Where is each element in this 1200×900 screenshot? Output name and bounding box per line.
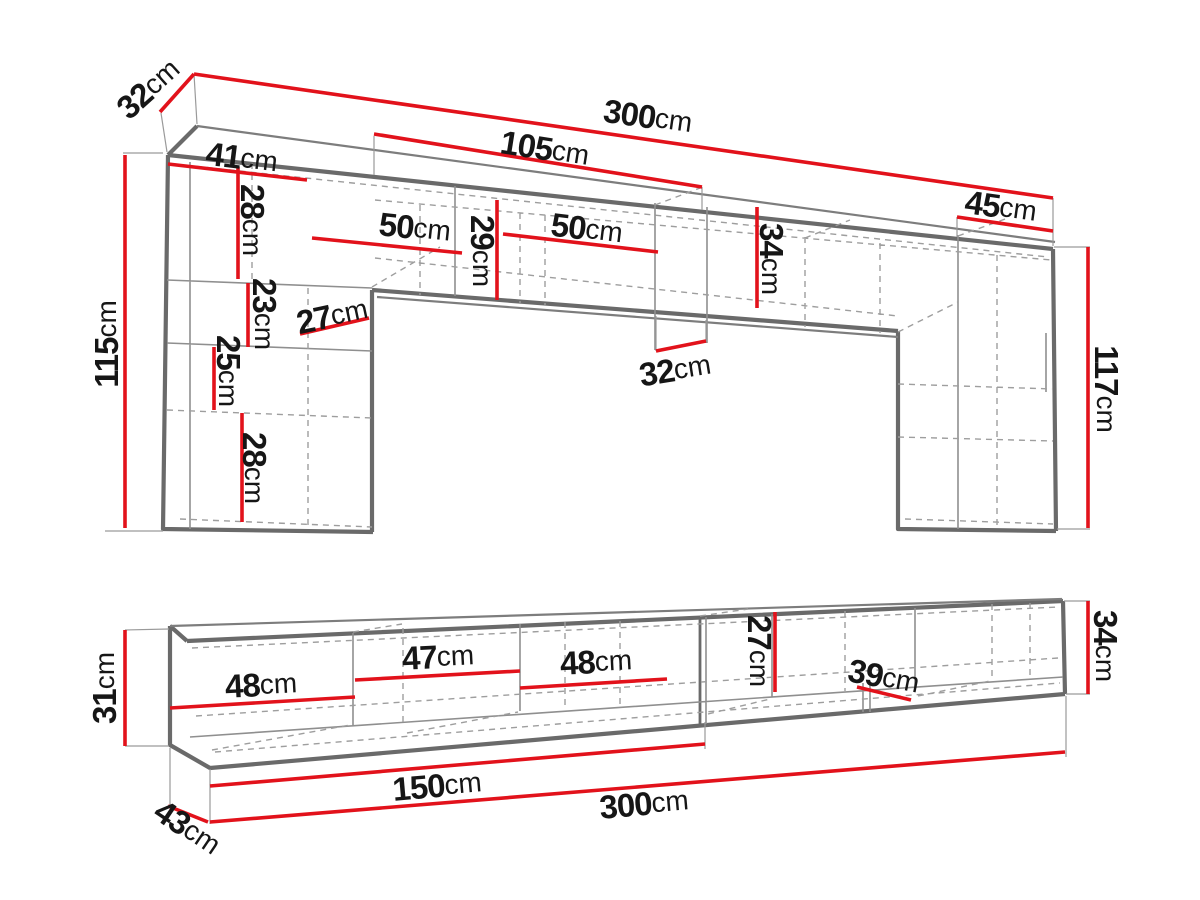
dim-label-left-section2-height: 23cm bbox=[247, 278, 284, 350]
dimension-line-total-width-300cm bbox=[194, 74, 1053, 198]
dim-label-bridge-front-height: 34cm bbox=[754, 223, 791, 295]
dim-label-top-depth: 32cm bbox=[109, 50, 187, 126]
tv-stand-outline bbox=[170, 601, 1065, 768]
tv-stand-drawing: 31cm 48cm 47cm 48cm 27cm 39cm 34cm 150cm… bbox=[86, 599, 1125, 862]
dim-label-stand-right-height: 34cm bbox=[1088, 610, 1125, 682]
diagram-svg: 32cm 300cm 105cm 45cm 41cm 28cm 50cm 29c… bbox=[0, 0, 1200, 900]
dim-label-bridge-depth: 32cm bbox=[637, 345, 714, 393]
dim-label-stand-inner-height: 27cm bbox=[742, 615, 779, 687]
dim-label-left-section4-height: 28cm bbox=[237, 432, 274, 504]
dimension-line-cubby3-48cm bbox=[520, 679, 667, 688]
tv-stand-dimension-labels: 31cm 48cm 47cm 48cm 27cm 39cm 34cm 150cm… bbox=[86, 610, 1125, 863]
dim-label-cubby3-width: 48cm bbox=[559, 641, 633, 682]
dim-label-stand-left-height: 31cm bbox=[86, 652, 123, 724]
dim-label-stand-total-width: 300cm bbox=[598, 781, 690, 826]
dim-label-bridge-inner-height: 29cm bbox=[465, 215, 502, 287]
dim-label-cubby1-width: 48cm bbox=[224, 664, 298, 705]
wall-unit-outline bbox=[163, 126, 1056, 532]
dim-label-left-niche-width: 27cm bbox=[293, 289, 371, 340]
dim-label-left-section3-height: 25cm bbox=[211, 335, 248, 407]
wall-unit-drawing: 32cm 300cm 105cm 45cm 41cm 28cm 50cm 29c… bbox=[88, 50, 1126, 532]
dim-label-stand-depth: 43cm bbox=[148, 792, 228, 863]
dim-label-cubby2-width: 47cm bbox=[401, 636, 475, 677]
dim-label-left-height: 115cm bbox=[88, 300, 125, 388]
wall-unit-dimension-labels: 32cm 300cm 105cm 45cm 41cm 28cm 50cm 29c… bbox=[88, 50, 1126, 504]
tv-stand-dashed-construction-lines bbox=[192, 603, 1060, 752]
furniture-dimension-diagram: 32cm 300cm 105cm 45cm 41cm 28cm 50cm 29c… bbox=[0, 0, 1200, 900]
dim-label-left-cubby-width: 50cm bbox=[377, 205, 453, 249]
dim-label-left-section1-height: 28cm bbox=[235, 184, 272, 256]
dim-label-right-height: 117cm bbox=[1089, 345, 1126, 433]
